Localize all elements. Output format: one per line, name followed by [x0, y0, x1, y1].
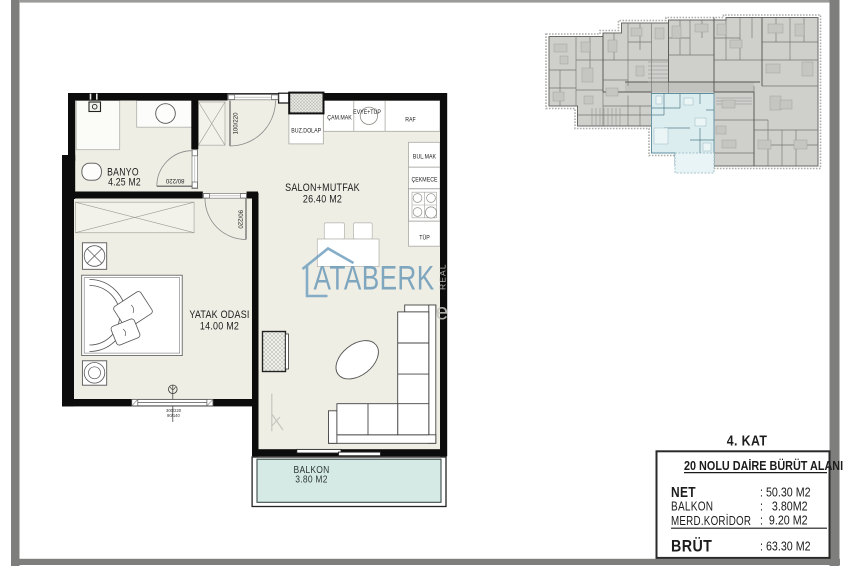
svg-text:BALKON: BALKON [671, 501, 713, 514]
svg-text:MERD.KORİDOR: MERD.KORİDOR [671, 514, 751, 528]
svg-text:90/140: 90/140 [167, 413, 180, 418]
svg-text:REAL: REAL [438, 263, 448, 290]
svg-text:RAF: RAF [405, 117, 416, 123]
svg-text:BUL.MAK: BUL.MAK [413, 154, 436, 160]
svg-text:BRÜT: BRÜT [671, 535, 712, 555]
svg-text:: 50.30 M2: : 50.30 M2 [760, 486, 811, 500]
svg-text:SALON+MUTFAK: SALON+MUTFAK [285, 182, 360, 194]
svg-text:TÜP: TÜP [419, 234, 430, 242]
svg-text:BUZ.DOLAP: BUZ.DOLAP [291, 128, 321, 134]
svg-text:80/220: 80/220 [165, 177, 184, 184]
svg-text:e: e [436, 299, 449, 325]
svg-text:YATAK ODASI: YATAK ODASI [189, 309, 249, 321]
svg-text:ATABERK: ATABERK [314, 259, 435, 297]
svg-text:4. KAT: 4. KAT [727, 433, 768, 449]
svg-text:14.00 M2: 14.00 M2 [200, 321, 239, 333]
svg-text:100/220: 100/220 [232, 112, 239, 134]
svg-text:ÇEKMECE: ÇEKMECE [411, 177, 437, 183]
svg-text:: 63.30 M2: : 63.30 M2 [760, 540, 811, 554]
svg-text:20 NOLU DAİRE BÜRÜT ALANI: 20 NOLU DAİRE BÜRÜT ALANI [684, 459, 843, 473]
svg-text:90/220: 90/220 [236, 210, 243, 229]
svg-text:4.25 M2: 4.25 M2 [108, 177, 141, 189]
svg-text:26.40 M2: 26.40 M2 [303, 194, 342, 206]
svg-text:3.80 M2: 3.80 M2 [295, 474, 327, 485]
svg-text:: 3.80M2: : 3.80M2 [760, 500, 808, 514]
svg-text:NET: NET [671, 484, 696, 500]
svg-text:: 9.20 M2: : 9.20 M2 [760, 514, 808, 528]
svg-text:ÇAM.MAK: ÇAM.MAK [327, 115, 352, 121]
svg-text:EVYE+TÜP: EVYE+TÜP [353, 108, 381, 116]
